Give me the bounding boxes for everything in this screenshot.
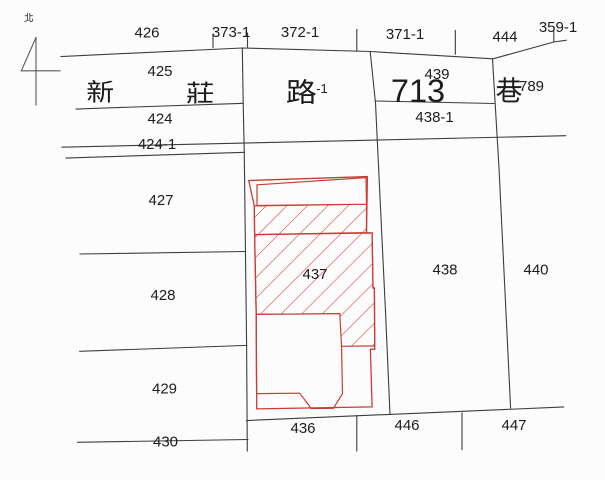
svg-text:437: 437 bbox=[302, 266, 327, 283]
svg-text:446: 446 bbox=[394, 417, 419, 434]
svg-text:713: 713 bbox=[391, 73, 445, 109]
svg-text:447: 447 bbox=[501, 417, 526, 434]
svg-text:789: 789 bbox=[519, 78, 544, 95]
svg-text:429: 429 bbox=[152, 380, 177, 397]
svg-text:425: 425 bbox=[147, 63, 172, 80]
svg-text:426: 426 bbox=[134, 24, 159, 41]
svg-text:-1: -1 bbox=[316, 81, 328, 96]
svg-text:438-1: 438-1 bbox=[415, 109, 453, 126]
svg-text:428: 428 bbox=[150, 287, 175, 304]
svg-text:371-1: 371-1 bbox=[386, 26, 424, 43]
svg-text:438: 438 bbox=[432, 261, 457, 278]
svg-text:427: 427 bbox=[148, 192, 173, 209]
svg-text:440: 440 bbox=[523, 261, 548, 278]
svg-text:372-1: 372-1 bbox=[281, 24, 319, 41]
svg-text:436: 436 bbox=[290, 420, 315, 437]
svg-text:430: 430 bbox=[153, 433, 178, 450]
svg-text:444: 444 bbox=[492, 28, 517, 45]
svg-text:359-1: 359-1 bbox=[539, 19, 577, 36]
svg-text:373-1: 373-1 bbox=[212, 24, 250, 41]
svg-text:424: 424 bbox=[147, 110, 172, 127]
svg-text:424-1: 424-1 bbox=[138, 136, 176, 153]
